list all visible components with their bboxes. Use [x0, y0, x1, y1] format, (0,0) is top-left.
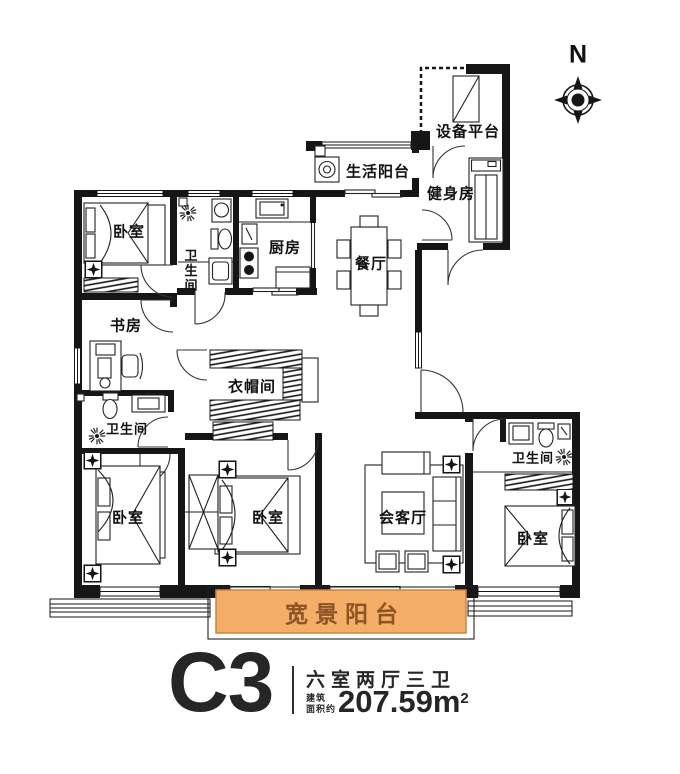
title-divider [292, 666, 294, 714]
area-prefix-line1: 建筑 [306, 693, 336, 704]
area-value: 207.59m2 [338, 684, 469, 720]
floorplan-page: 卧室 卫生间 厨房 餐厅 生活阳台 设备平台 健身房 书房 衣帽间 卫生间 卧室… [0, 0, 680, 774]
room-label-bedroom-top-left: 卧室 [113, 221, 145, 242]
room-label-dining: 餐厅 [355, 253, 387, 274]
area-prefix: 建筑 面积约 [306, 693, 336, 715]
room-label-study: 书房 [110, 315, 142, 336]
area-superscript: 2 [460, 690, 468, 707]
room-label-kitchen: 厨房 [269, 237, 301, 258]
room-label-gym: 健身房 [427, 183, 475, 204]
room-label-reception: 会客厅 [379, 507, 427, 528]
bedroom-top-left-furniture [84, 203, 165, 292]
living-balcony-furniture [315, 146, 339, 182]
room-label-bathroom-right: 卫生间 [512, 448, 554, 467]
room-label-bedroom-bottom-left: 卧室 [112, 507, 144, 528]
equipment-platform-furniture [453, 76, 479, 122]
title-block: C3 六室两厅三卫 建筑 面积约 207.59m2 [0, 646, 680, 736]
room-label-bedroom-bottom-right: 卧室 [517, 528, 549, 549]
room-label-bedroom-bottom-mid: 卧室 [252, 507, 284, 528]
compass-north-label: N [569, 41, 587, 70]
room-label-living-balcony: 生活阳台 [346, 161, 410, 182]
study-furniture [90, 341, 143, 391]
bedroom-bottom-right-furniture [473, 472, 575, 566]
room-label-cloakroom: 衣帽间 [228, 376, 276, 397]
area-number: 207.59m [338, 684, 460, 719]
unit-code: C3 [168, 642, 273, 722]
room-label-equipment-platform: 设备平台 [436, 121, 500, 142]
room-label-panoramic-balcony: 宽景阳台 [285, 595, 405, 629]
area-prefix-line2: 面积约 [306, 704, 336, 715]
room-label-bathroom-mid: 卫生间 [106, 419, 148, 438]
room-label-bathroom-top: 卫生间 [181, 249, 200, 294]
compass-icon [554, 76, 602, 124]
